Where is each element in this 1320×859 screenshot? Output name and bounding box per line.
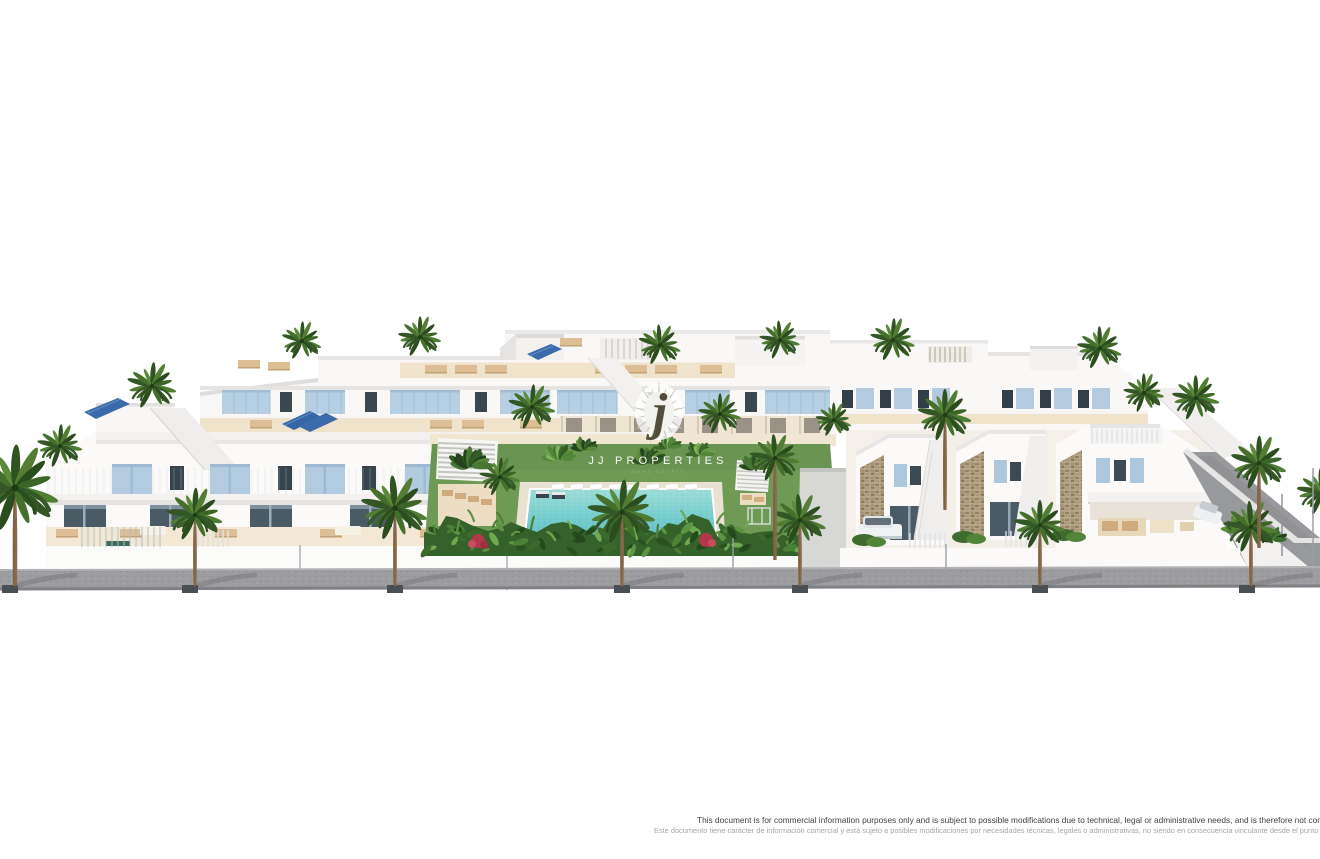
svg-text:JJ PROPERTIES: JJ PROPERTIES [588,455,727,467]
svg-text:REAL ESTATE: REAL ESTATE [632,469,687,475]
